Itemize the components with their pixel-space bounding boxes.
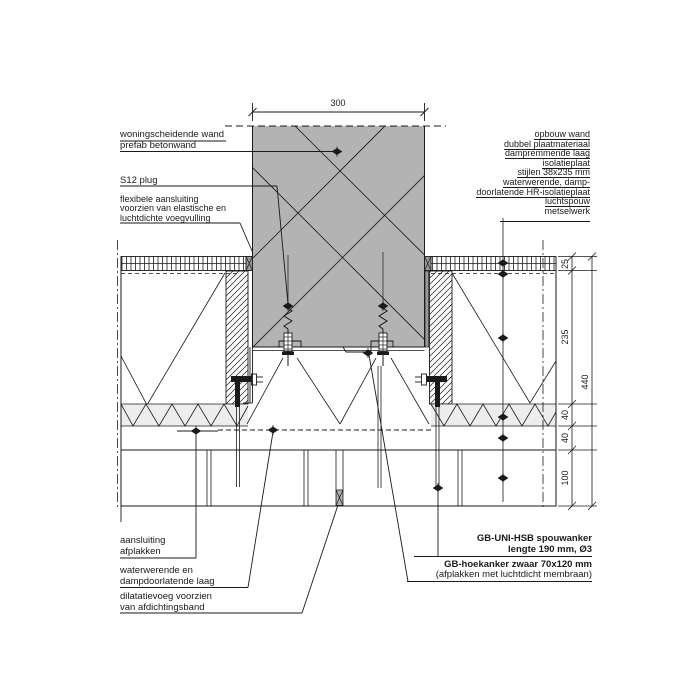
label-plug: S12 plug xyxy=(120,176,158,187)
label-dilatation-joint: dilatatievoeg voorzien van afdichtingsba… xyxy=(120,592,212,613)
label-line: van afdichtingsband xyxy=(120,603,212,614)
label-party-wall: woningscheidende wand prefab betonwand xyxy=(120,130,224,151)
dimension-total-440: 440 xyxy=(580,362,590,402)
label-line: dilatatievoeg voorzien xyxy=(120,592,212,603)
label-line: luchtdichte voegvulling xyxy=(120,214,226,223)
label-water-layer: waterwerende en dampdoorlatende laag xyxy=(120,566,215,587)
label-line: aansluiting xyxy=(120,536,165,547)
label-line: metselwerk xyxy=(476,207,590,217)
label-line: (afplakken met luchtdicht membraan) xyxy=(436,570,592,581)
label-corner-anchor: GB-hoekanker zwaar 70x120 mm (afplakken … xyxy=(436,560,592,581)
membrane-dashed-line xyxy=(177,430,431,431)
timber-block-right xyxy=(425,257,432,271)
membrane-drape-lines xyxy=(247,358,429,424)
label-flexible-joint: flexibele aansluiting voorzien van elast… xyxy=(120,195,226,223)
dimension-wall-width: 300 xyxy=(323,98,353,108)
dimension-segment-100: 100 xyxy=(560,458,570,498)
label-line: lengte 190 mm, Ø3 xyxy=(477,545,592,556)
brickwork xyxy=(121,450,556,522)
label-line: waterwerende en xyxy=(120,566,215,577)
dimension-segment-235: 235 xyxy=(560,317,570,357)
construction-detail-drawing: woningscheidende wand prefab betonwand S… xyxy=(0,0,700,700)
label-line: GB-UNI-HSB spouwanker xyxy=(477,534,592,545)
label-line: afplakken xyxy=(120,547,165,558)
label-line: S12 plug xyxy=(120,176,158,187)
dimension-segment-40b: 40 xyxy=(560,418,570,458)
label-line: dampdoorlatende laag xyxy=(120,577,215,588)
hr-insulation-board xyxy=(121,404,556,426)
timber-block-left xyxy=(246,257,253,271)
label-outer-wall-layers: opbouw wand dubbel plaatmateriaal dampre… xyxy=(476,130,590,216)
dimension-segment-25: 25 xyxy=(560,244,570,284)
label-line: woningscheidende wand xyxy=(120,130,224,141)
label-tape-connection: aansluiting afplakken xyxy=(120,536,165,557)
label-cavity-tie: GB-UNI-HSB spouwanker lengte 190 mm, Ø3 xyxy=(477,534,592,555)
label-line: prefab betonwand xyxy=(120,141,224,152)
